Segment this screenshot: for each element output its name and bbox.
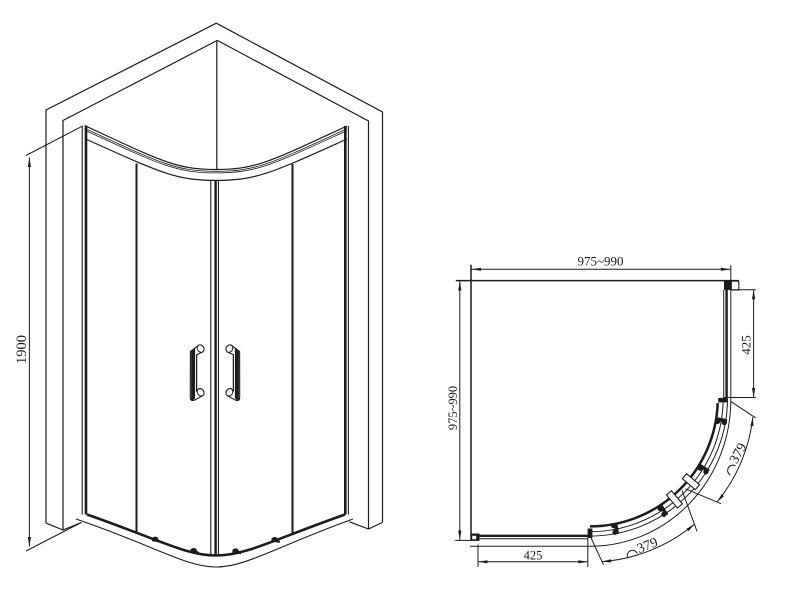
svg-text:1900: 1900 — [14, 335, 30, 364]
svg-text:379: 379 — [635, 535, 660, 557]
svg-text:975~990: 975~990 — [577, 254, 623, 269]
svg-text:975~990: 975~990 — [446, 386, 460, 430]
svg-text:425: 425 — [739, 335, 754, 355]
svg-text:425: 425 — [524, 548, 543, 562]
